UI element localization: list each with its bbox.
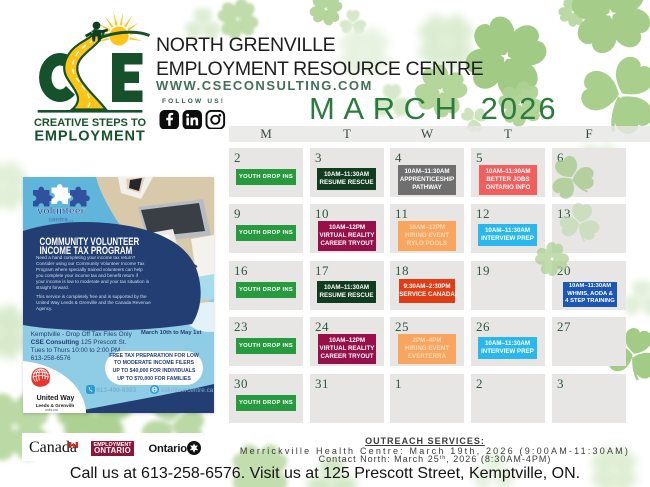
svg-text:EMPLOYMENT: EMPLOYMENT <box>34 129 145 145</box>
svg-text:CREATIVE STEPS TO: CREATIVE STEPS TO <box>34 117 147 129</box>
svg-text:United Way: United Way <box>37 395 74 402</box>
svg-text:unity.org: unity.org <box>45 408 58 411</box>
svg-text:centre...: centre... <box>49 217 74 224</box>
svg-text:volunteer: volunteer <box>37 205 84 217</box>
